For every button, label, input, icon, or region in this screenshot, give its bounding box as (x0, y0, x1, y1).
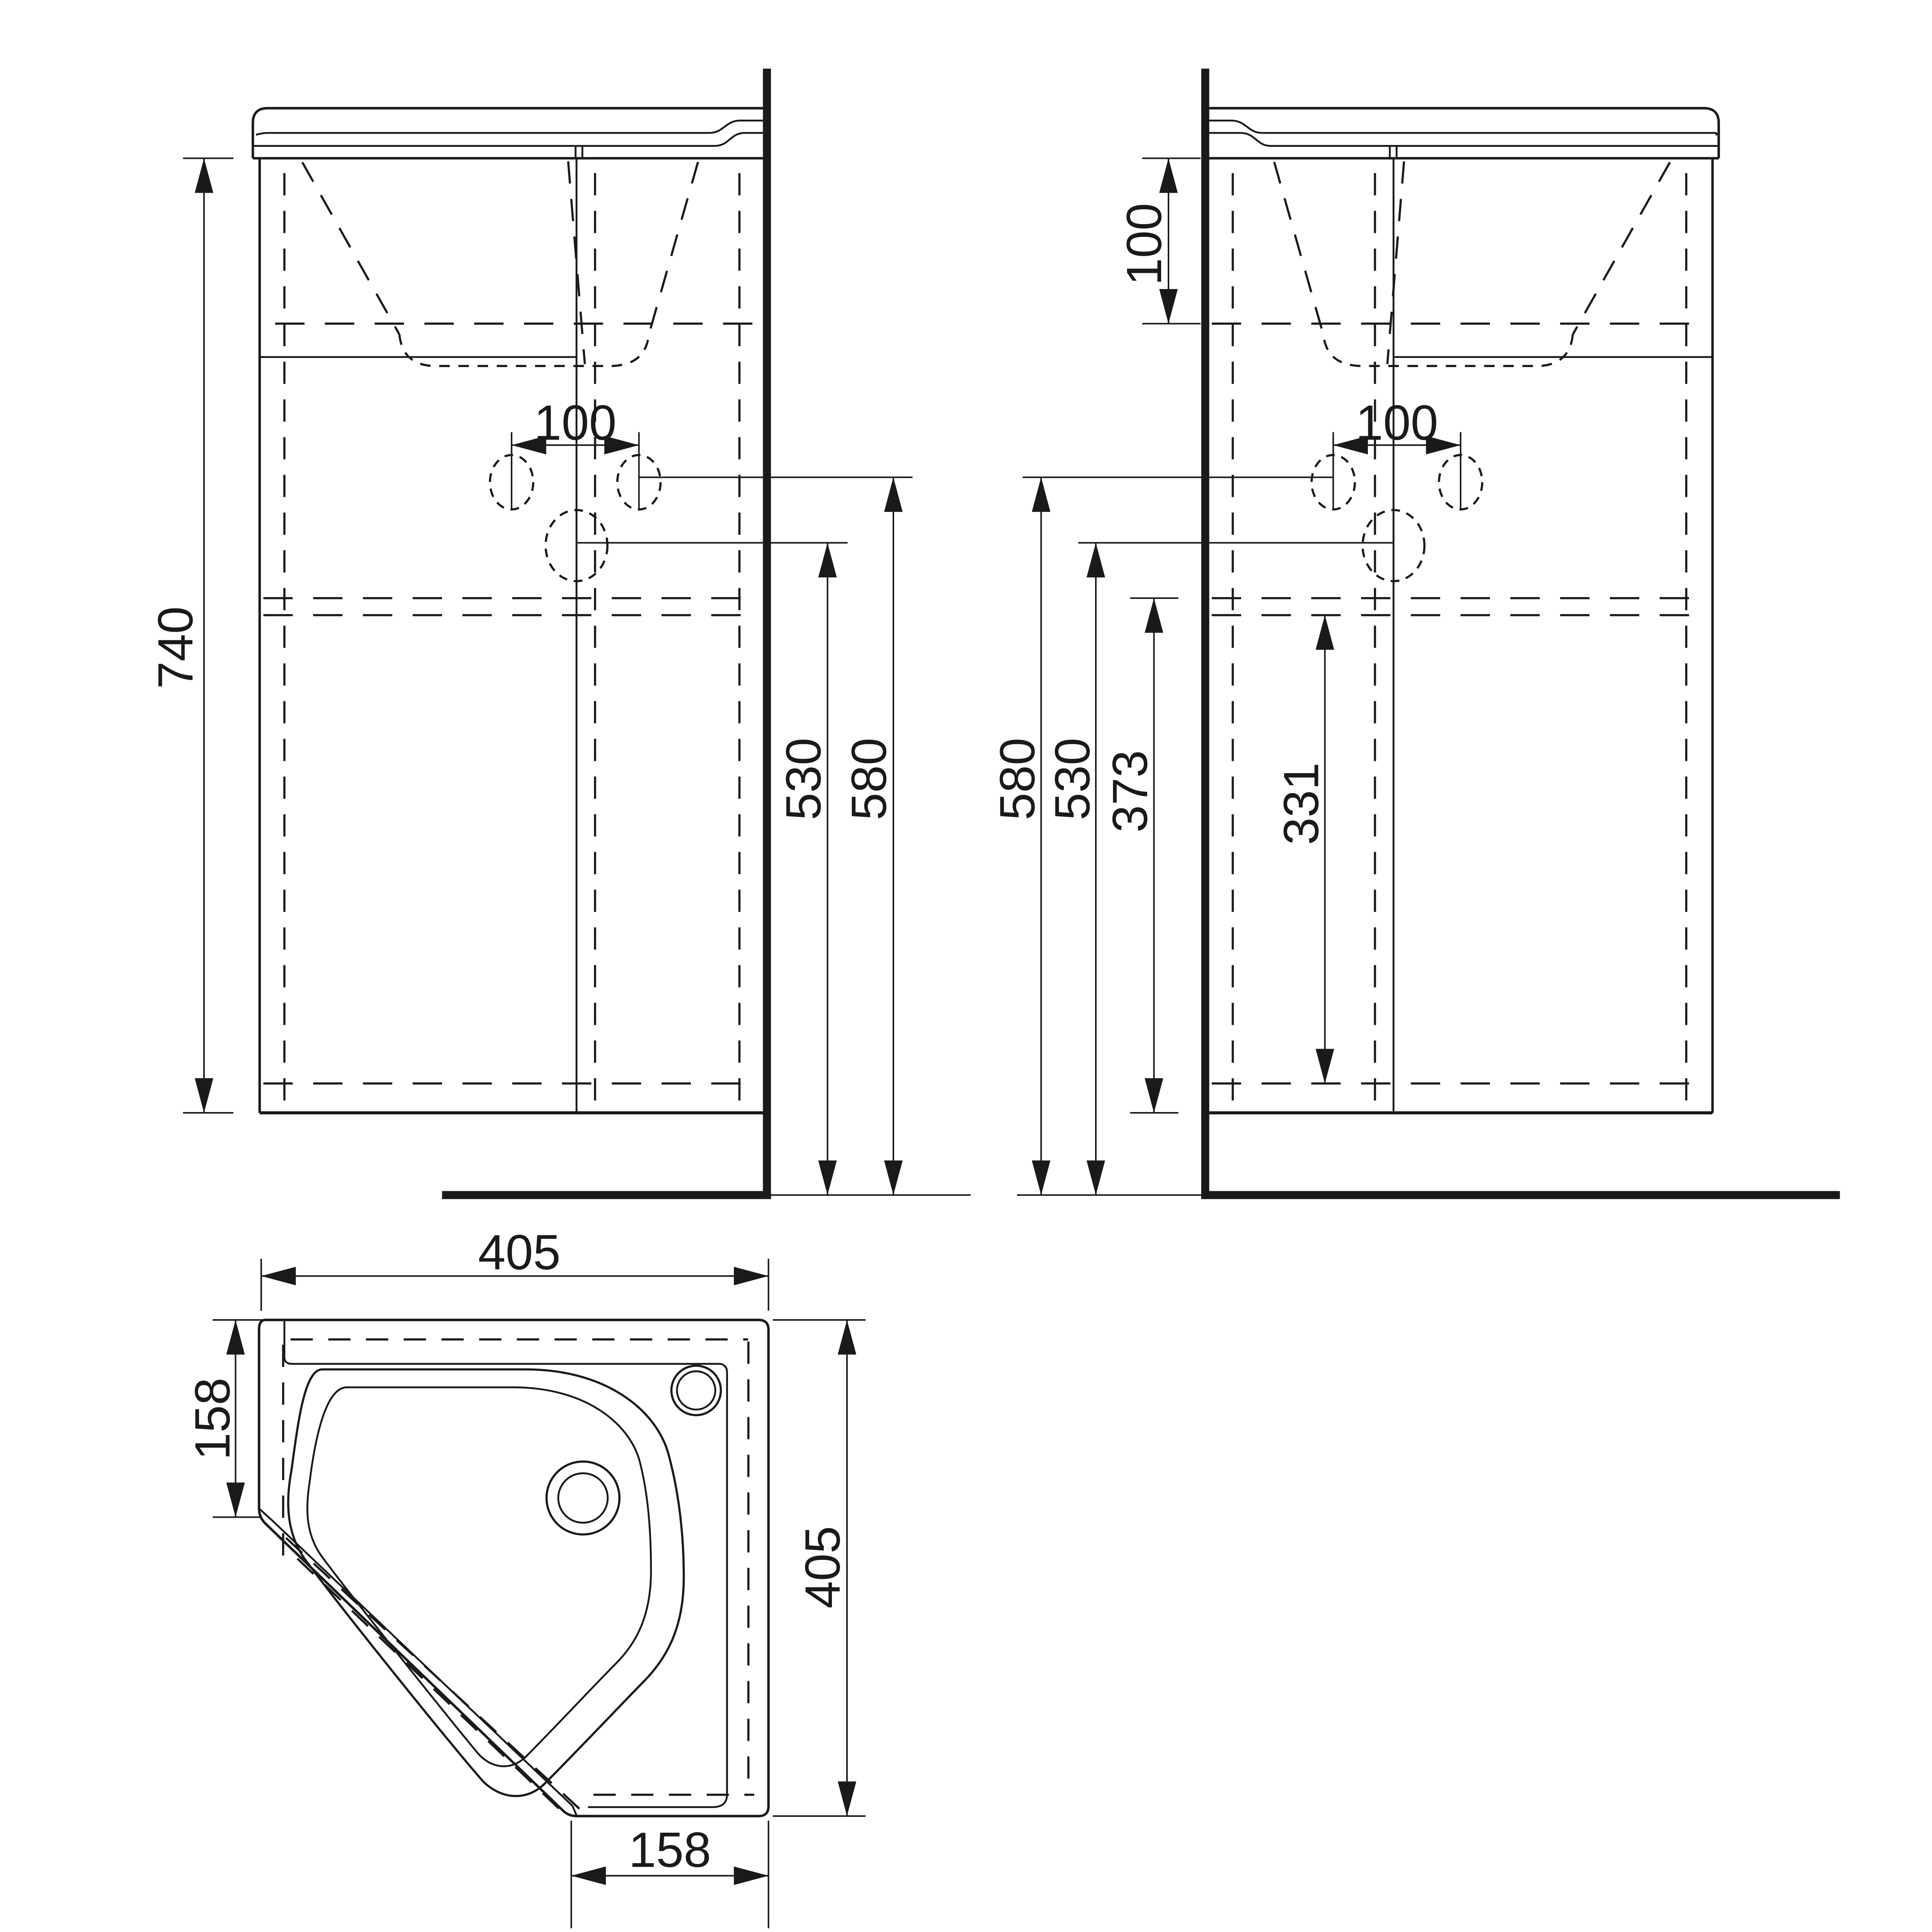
dim-drain-height-530: 530 (1045, 543, 1105, 1195)
dim-label-373: 373 (1102, 750, 1158, 833)
plan-view: 405 158 405 158 (185, 1225, 866, 1928)
arrowhead-down-icon (1159, 289, 1178, 324)
dim-shelf-height-331: 331 (1274, 615, 1334, 1083)
wall-section (1201, 69, 1209, 1199)
arrowhead-right-icon (734, 1267, 769, 1285)
dim-label-405: 405 (795, 1526, 850, 1609)
dim-cabinet-bottom-373: 373 (1102, 598, 1178, 1113)
dim-label-100: 100 (534, 395, 617, 451)
arrowhead-down-icon (884, 1160, 903, 1195)
hidden-basin-slant (1274, 162, 1324, 336)
dim-label-580: 580 (990, 738, 1045, 820)
dim-drain-height-530: 530 (776, 543, 837, 1195)
dim-label-740: 740 (148, 606, 203, 689)
arrowhead-up-icon (1145, 598, 1163, 633)
arrowhead-up-icon (838, 1320, 856, 1355)
hidden-cabinet-edge-diagonal (298, 1559, 565, 1814)
dim-faucet-height-580: 580 (990, 477, 1050, 1195)
hidden-basin-slant (648, 162, 698, 336)
countertop-profile-line-2 (1209, 133, 1719, 146)
dim-label-580: 580 (842, 738, 897, 820)
dim-depth-158-left: 158 (185, 1320, 262, 1517)
arrowhead-down-icon (1032, 1160, 1050, 1195)
countertop-profile-line-1 (1209, 121, 1717, 135)
arrowhead-up-icon (1159, 158, 1178, 193)
countertop-profile-line-1 (256, 121, 763, 135)
hidden-basin-slant (1387, 162, 1404, 364)
basin-bowl-inner-outline (307, 1387, 651, 1766)
dim-faucet-height-580: 580 (842, 477, 903, 1195)
faucet-hole-outer (672, 1366, 721, 1415)
hidden-basin-slant (1573, 162, 1670, 335)
front-view-right: 100 100 580 530 (990, 69, 1840, 1199)
wall-section (763, 69, 771, 1199)
dim-label-100: 100 (1355, 395, 1438, 451)
arrowhead-up-icon (1087, 543, 1105, 578)
arrowhead-up-icon (226, 1320, 245, 1355)
arrowhead-left-icon (571, 1866, 606, 1885)
rim-inner-edge (284, 1320, 727, 1807)
arrowhead-right-icon (734, 1866, 769, 1885)
arrowhead-up-icon (1032, 477, 1050, 512)
dim-width-405-top: 405 (261, 1225, 769, 1311)
arrowhead-down-icon (195, 1078, 213, 1113)
rim-inner-diagonal-edge (259, 1509, 577, 1816)
dim-label-530: 530 (1045, 738, 1100, 820)
arrowhead-up-icon (884, 477, 903, 512)
front-view-left: 740 100 530 580 (148, 69, 971, 1199)
arrowhead-down-icon (226, 1483, 245, 1517)
countertop-profile-line-2 (253, 133, 763, 146)
drawing-sheet: 740 100 530 580 (0, 0, 1932, 1932)
arrowhead-left-icon (261, 1267, 296, 1285)
arrowhead-down-icon (1316, 1049, 1334, 1083)
arrowhead-up-icon (818, 543, 837, 578)
technical-drawing-canvas: 740 100 530 580 (0, 0, 1932, 1932)
dim-label-530: 530 (776, 738, 832, 820)
arrowhead-down-icon (818, 1160, 837, 1195)
basin-outer-contour (259, 1320, 768, 1816)
arrowhead-down-icon (838, 1781, 856, 1816)
arrowhead-down-icon (1145, 1078, 1163, 1113)
faucet-hole-inner (677, 1371, 715, 1410)
hidden-basin-bottom-curve (400, 335, 649, 366)
dim-label-158: 158 (629, 1823, 711, 1878)
dim-depth-405-right: 405 (773, 1320, 866, 1816)
dim-label-158: 158 (185, 1378, 240, 1460)
dim-height-740: 740 (148, 158, 233, 1113)
dim-label-100: 100 (1117, 203, 1172, 286)
hidden-basin-slant (302, 162, 399, 335)
arrowhead-down-icon (1087, 1160, 1105, 1195)
arrowhead-up-icon (1316, 615, 1334, 650)
hidden-cabinet-edge-diagonal (286, 1538, 583, 1812)
hidden-basin-bottom-curve (1324, 335, 1573, 366)
arrowhead-up-icon (195, 158, 213, 193)
dim-label-331: 331 (1274, 762, 1329, 845)
dim-label-405: 405 (478, 1225, 561, 1280)
dim-basin-depth-100: 100 (1117, 158, 1201, 324)
dim-width-158-bottom: 158 (571, 1821, 768, 1928)
drain-hole-inner (558, 1473, 608, 1523)
